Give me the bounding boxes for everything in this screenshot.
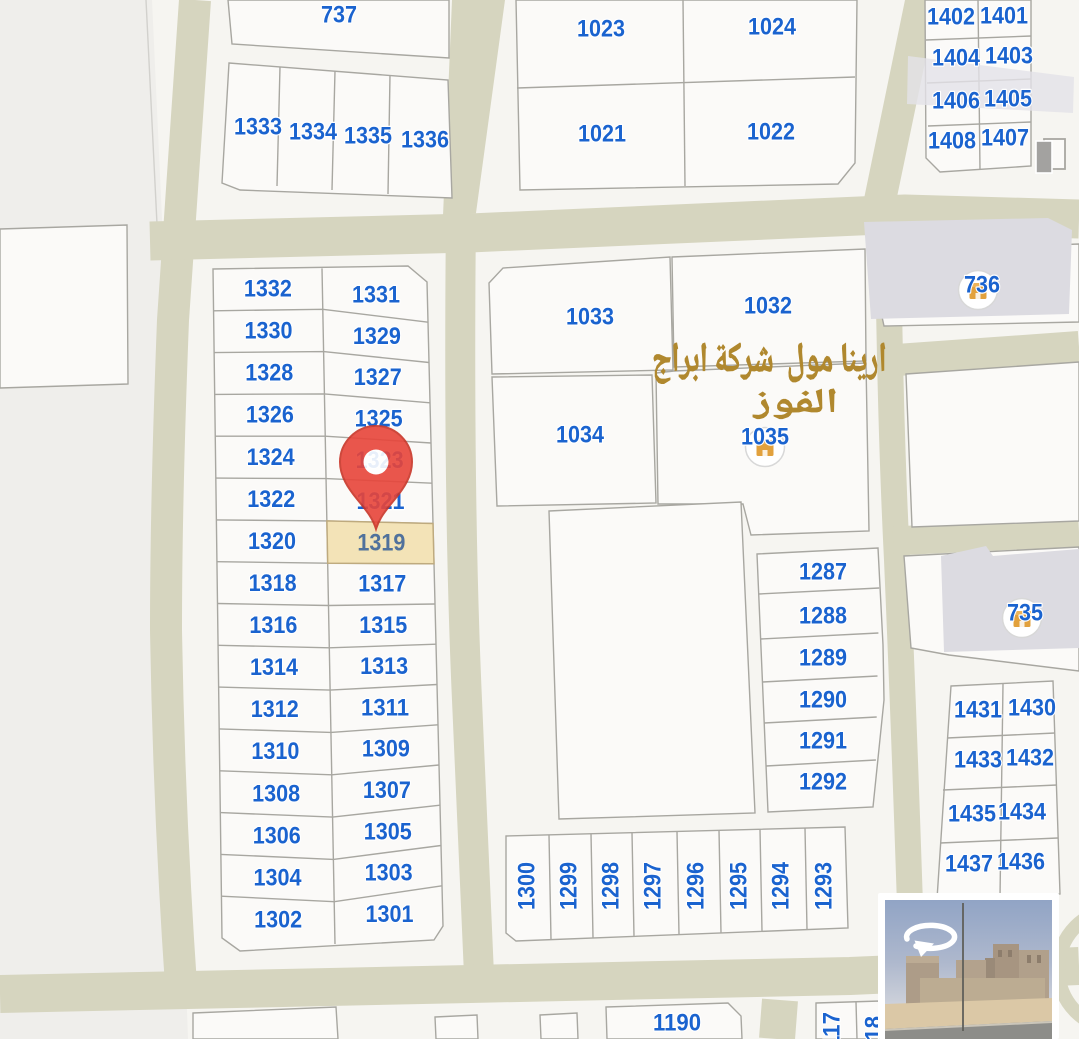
svg-text:1291: 1291 xyxy=(799,728,847,755)
svg-text:1293: 1293 xyxy=(811,862,838,910)
svg-text:1320: 1320 xyxy=(248,528,296,555)
svg-text:1301: 1301 xyxy=(366,901,414,928)
svg-text:1404: 1404 xyxy=(932,45,980,72)
svg-text:1402: 1402 xyxy=(927,4,975,31)
svg-text:1328: 1328 xyxy=(245,360,293,387)
svg-text:1401: 1401 xyxy=(980,3,1028,30)
svg-text:1437: 1437 xyxy=(945,851,993,878)
svg-text:1407: 1407 xyxy=(981,125,1029,152)
svg-text:1313: 1313 xyxy=(360,653,408,680)
svg-text:1306: 1306 xyxy=(253,822,301,849)
svg-text:1311: 1311 xyxy=(361,694,409,721)
svg-text:1331: 1331 xyxy=(352,282,400,309)
svg-text:1299: 1299 xyxy=(556,862,583,910)
svg-text:1335: 1335 xyxy=(344,123,392,150)
svg-text:1287: 1287 xyxy=(799,559,847,586)
svg-text:1307: 1307 xyxy=(363,777,411,804)
svg-text:1294: 1294 xyxy=(768,862,795,910)
svg-text:1297: 1297 xyxy=(640,862,667,910)
svg-text:1434: 1434 xyxy=(998,799,1046,826)
svg-text:1317: 1317 xyxy=(358,571,406,598)
svg-text:1023: 1023 xyxy=(577,16,625,43)
svg-text:1289: 1289 xyxy=(799,645,847,672)
svg-text:735: 735 xyxy=(1007,600,1043,627)
svg-text:1310: 1310 xyxy=(251,738,299,765)
svg-text:1035: 1035 xyxy=(741,424,789,451)
svg-text:1431: 1431 xyxy=(954,697,1002,724)
svg-text:1308: 1308 xyxy=(252,780,300,807)
svg-text:1292: 1292 xyxy=(799,769,847,796)
svg-text:1190: 1190 xyxy=(653,1010,701,1037)
svg-text:1435: 1435 xyxy=(948,801,996,828)
svg-text:1319: 1319 xyxy=(357,529,405,556)
svg-text:1408: 1408 xyxy=(928,128,976,155)
svg-text:1312: 1312 xyxy=(251,696,299,723)
svg-text:117: 117 xyxy=(819,1012,846,1039)
svg-text:737: 737 xyxy=(321,2,357,29)
svg-text:1336: 1336 xyxy=(401,127,449,154)
svg-text:1034: 1034 xyxy=(556,422,604,449)
svg-text:1326: 1326 xyxy=(246,402,294,429)
svg-text:1304: 1304 xyxy=(253,864,301,891)
svg-text:1300: 1300 xyxy=(514,862,541,910)
svg-text:1430: 1430 xyxy=(1008,695,1056,722)
svg-text:1330: 1330 xyxy=(245,318,293,345)
svg-text:1305: 1305 xyxy=(364,818,412,845)
svg-text:1302: 1302 xyxy=(254,906,302,933)
svg-text:1296: 1296 xyxy=(683,862,710,910)
svg-text:1315: 1315 xyxy=(359,612,407,639)
svg-text:1024: 1024 xyxy=(748,14,796,41)
svg-text:1033: 1033 xyxy=(566,304,614,331)
svg-text:1432: 1432 xyxy=(1006,745,1054,772)
svg-text:736: 736 xyxy=(964,272,1000,299)
svg-text:1021: 1021 xyxy=(578,121,626,148)
svg-text:1403: 1403 xyxy=(985,43,1033,70)
svg-text:1405: 1405 xyxy=(984,86,1032,113)
svg-text:1298: 1298 xyxy=(598,862,625,910)
svg-text:1334: 1334 xyxy=(289,119,337,146)
svg-text:1290: 1290 xyxy=(799,687,847,714)
svg-text:1329: 1329 xyxy=(353,323,401,350)
svg-text:1022: 1022 xyxy=(747,119,795,146)
svg-text:1316: 1316 xyxy=(249,612,297,639)
svg-text:1309: 1309 xyxy=(362,736,410,763)
svg-text:1433: 1433 xyxy=(954,747,1002,774)
svg-text:1436: 1436 xyxy=(997,849,1045,876)
svg-text:1295: 1295 xyxy=(726,862,753,910)
svg-text:1288: 1288 xyxy=(799,603,847,630)
svg-text:1333: 1333 xyxy=(234,114,282,141)
svg-text:1322: 1322 xyxy=(247,486,295,513)
svg-text:1032: 1032 xyxy=(744,293,792,320)
svg-text:1332: 1332 xyxy=(244,276,292,303)
svg-text:1303: 1303 xyxy=(365,860,413,887)
svg-text:1406: 1406 xyxy=(932,88,980,115)
svg-text:1314: 1314 xyxy=(250,654,298,681)
svg-text:1327: 1327 xyxy=(354,364,402,391)
svg-text:1324: 1324 xyxy=(247,444,295,471)
svg-text:1318: 1318 xyxy=(249,570,297,597)
